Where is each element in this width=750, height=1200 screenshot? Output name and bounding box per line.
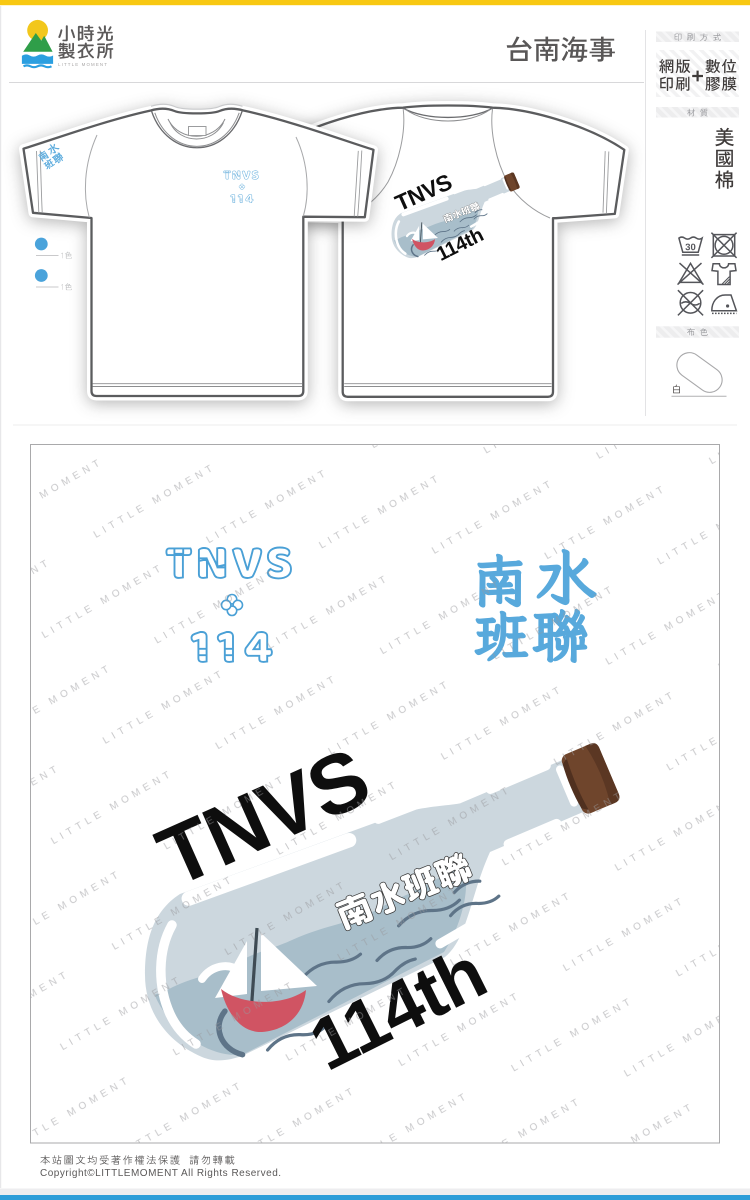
svg-text:Copyright©LITTLEMOMENT All Rig: Copyright©LITTLEMOMENT All Rights Reserv…	[40, 1168, 282, 1179]
svg-text:LITTLE MOMENT: LITTLE MOMENT	[58, 62, 108, 67]
